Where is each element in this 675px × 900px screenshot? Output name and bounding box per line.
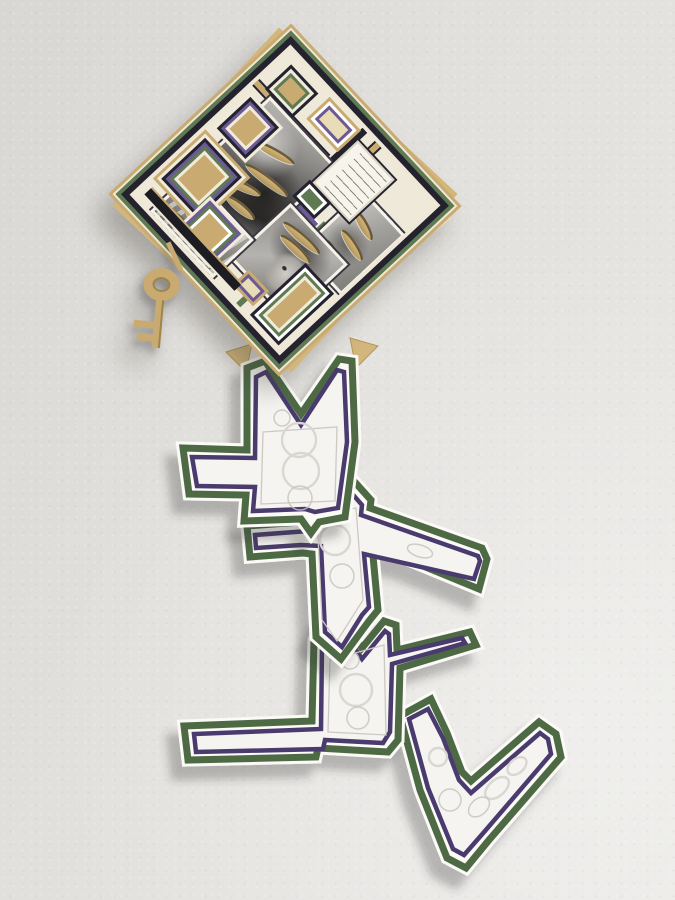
eye-detail — [291, 275, 297, 281]
gold-slit — [252, 137, 297, 167]
chain-segment-4 — [400, 699, 561, 868]
key-bow — [142, 267, 181, 303]
nested-frame — [319, 110, 348, 140]
nested-frame — [278, 77, 306, 105]
nested-frame — [301, 188, 323, 211]
key-tooth — [134, 320, 157, 329]
gallery-wall — [0, 0, 675, 900]
key-cutout — [124, 245, 197, 356]
key-tooth — [137, 333, 156, 342]
eye-detail — [281, 265, 287, 271]
diamond-collage — [0, 0, 675, 480]
gold-slit — [339, 228, 366, 263]
